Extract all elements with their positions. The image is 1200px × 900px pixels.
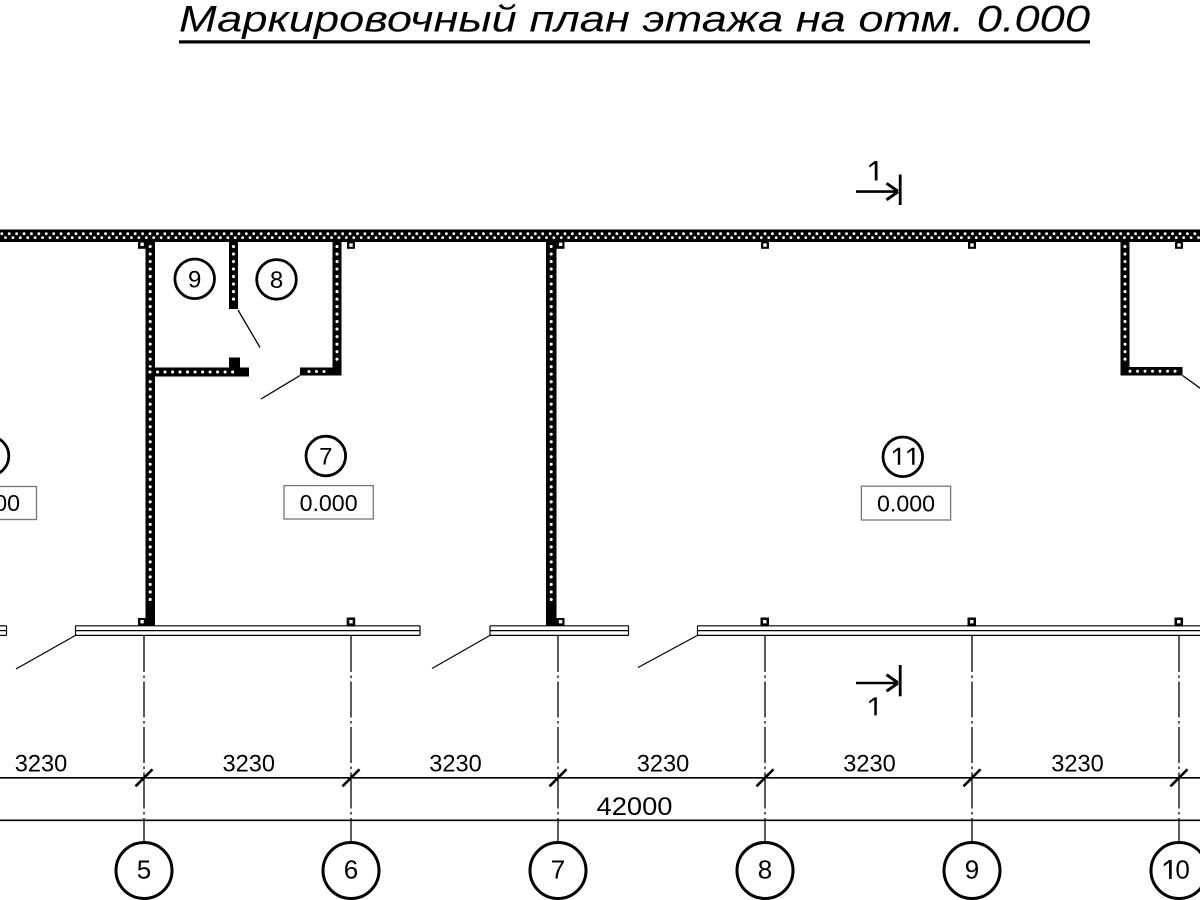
svg-text:3230: 3230 [429, 750, 482, 777]
svg-text:8: 8 [270, 267, 283, 294]
svg-text:3230: 3230 [843, 750, 896, 777]
svg-text:3230: 3230 [1051, 750, 1104, 777]
svg-text:3230: 3230 [222, 750, 275, 777]
svg-text:3230: 3230 [637, 750, 690, 777]
svg-text:5: 5 [137, 855, 151, 885]
svg-text:0: 0 [1175, 855, 1189, 885]
svg-text:0.000: 0.000 [0, 490, 20, 516]
svg-text:7: 7 [319, 444, 332, 471]
svg-text:9: 9 [965, 855, 979, 885]
svg-text:0.000: 0.000 [877, 490, 935, 516]
svg-text:6: 6 [344, 855, 358, 885]
svg-text:0.000: 0.000 [300, 490, 358, 516]
svg-text:Маркировочный план этажа на от: Маркировочный план этажа на отм. 0.000 [179, 0, 1091, 39]
svg-text:8: 8 [758, 855, 772, 885]
svg-text:42000: 42000 [597, 793, 673, 821]
svg-text:3230: 3230 [15, 750, 68, 777]
svg-text:9: 9 [188, 266, 201, 293]
svg-text:7: 7 [551, 855, 565, 885]
